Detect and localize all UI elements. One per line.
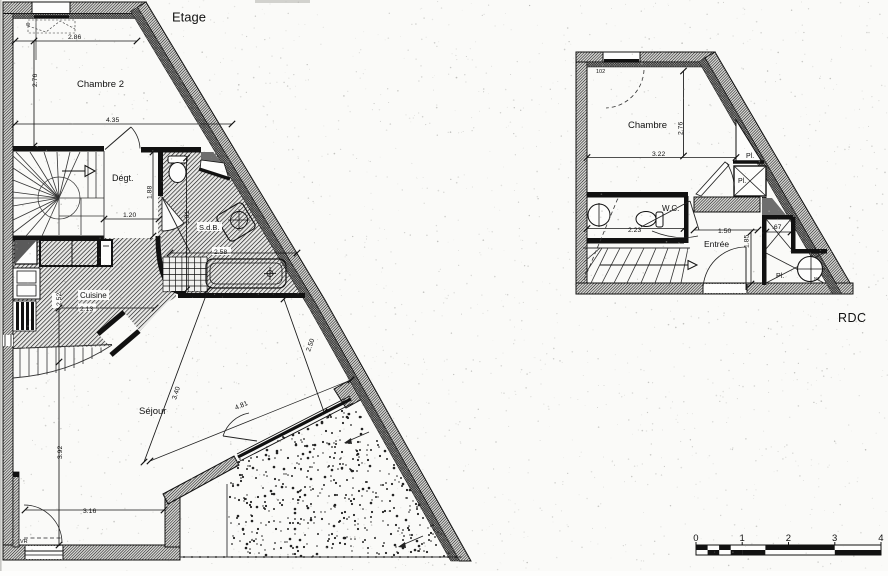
svg-text:VR: VR: [20, 539, 28, 545]
svg-text:Pl.: Pl.: [738, 178, 746, 185]
svg-text:Entrée: Entrée: [704, 239, 729, 249]
svg-text:Séjour: Séjour: [139, 406, 166, 417]
svg-text:2.13: 2.13: [80, 306, 93, 313]
svg-text:Cuisine: Cuisine: [80, 291, 107, 300]
svg-text:3: 3: [832, 533, 837, 544]
svg-text:Etage: Etage: [172, 10, 206, 25]
svg-text:W.C.: W.C.: [662, 204, 679, 213]
svg-text:4.35: 4.35: [106, 117, 119, 124]
svg-text:2.23: 2.23: [628, 227, 641, 234]
svg-text:1.01: 1.01: [184, 211, 191, 224]
svg-text:0: 0: [693, 533, 698, 544]
svg-text:102: 102: [596, 69, 605, 75]
svg-text:.67: .67: [772, 224, 782, 231]
svg-text:1.20: 1.20: [123, 212, 136, 219]
svg-text:Pl.: Pl.: [746, 153, 754, 160]
svg-text:4: 4: [878, 533, 883, 544]
svg-text:3.92: 3.92: [57, 446, 64, 459]
svg-text:2.86: 2.86: [68, 34, 81, 41]
svg-text:w: w: [25, 22, 30, 28]
svg-text:N2: N2: [814, 276, 820, 281]
svg-text:1.88: 1.88: [147, 186, 154, 199]
svg-text:Chambre 2: Chambre 2: [77, 79, 124, 90]
svg-text:2.76: 2.76: [32, 74, 39, 87]
svg-text:2.76: 2.76: [678, 122, 685, 135]
svg-text:S.d.B.: S.d.B.: [199, 223, 219, 232]
svg-text:1: 1: [740, 533, 745, 544]
svg-text:1.50: 1.50: [718, 228, 731, 235]
svg-text:Chambre: Chambre: [628, 120, 667, 131]
svg-text:3.16: 3.16: [83, 508, 96, 515]
svg-text:Dégt.: Dégt.: [112, 173, 134, 183]
svg-text:2: 2: [786, 533, 791, 544]
svg-text:2.58: 2.58: [214, 249, 227, 256]
svg-text:2.52: 2.52: [56, 293, 63, 306]
svg-text:Pl.: Pl.: [776, 273, 784, 280]
